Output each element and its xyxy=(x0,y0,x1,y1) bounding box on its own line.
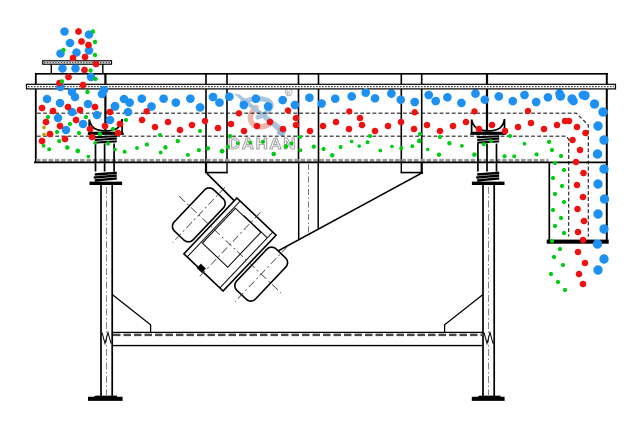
svg-text:R: R xyxy=(287,91,291,97)
